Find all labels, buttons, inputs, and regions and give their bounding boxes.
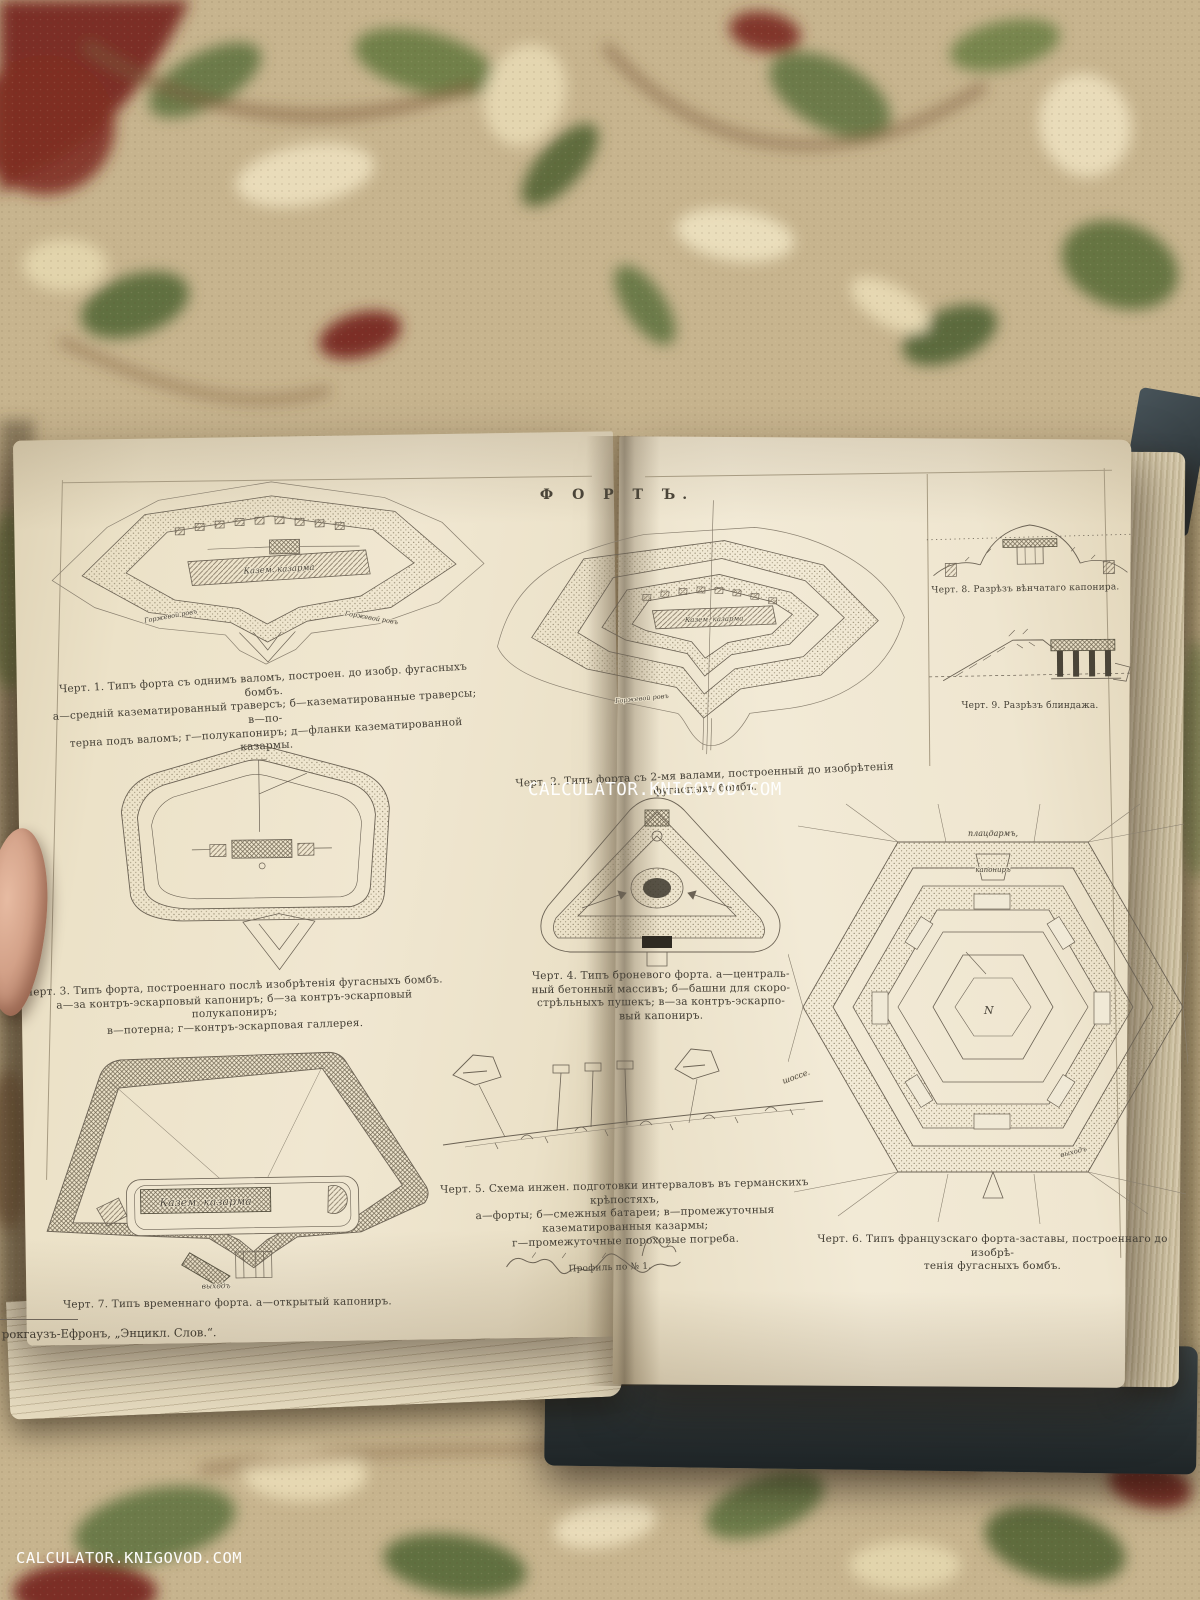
fig5-road-label: шоссе. [781, 1068, 811, 1086]
figure-1-drawing: Казем. казарма Горжевой ровъ Горжевой ро… [46, 459, 490, 674]
plate-title: Ф О Р Т Ъ. [532, 487, 702, 503]
footer-separator [0, 1319, 78, 1320]
figure-5-caption: Черт. 5. Схема инжен. подготовки интерва… [424, 1176, 825, 1253]
fig1-ditch-right-label: Горжевой ровъ [343, 609, 399, 626]
photo-of-open-book: Ф О Р Т Ъ. Казем. казарма Горжевой ровъ … [0, 0, 1200, 1600]
figure-5-drawing: шоссе. [435, 1035, 830, 1175]
publisher-footer: рокгаузъ-Ефронъ, „Энцикл. Слов.“. [2, 1325, 262, 1341]
fig2-kazarma-label: Казем. казарма [684, 615, 744, 625]
figure-9-drawing [925, 617, 1136, 704]
fig7-kazarma-label: Казем. казарма [158, 1195, 251, 1210]
figure-3-drawing [90, 730, 413, 982]
battery-symbols [553, 1061, 633, 1131]
fig6-kaponir-label: капониръ [975, 866, 1011, 874]
fig6-platzdarm-label: плацдармъ, [968, 829, 1018, 838]
fig6-north-label: N [983, 1004, 994, 1017]
watermark-bottom: CALCULATOR.KNIGOVOD.COM [16, 1549, 242, 1567]
blindage-posts [1057, 650, 1111, 676]
figure-4-caption: Черт. 4. Типъ броневого форта. а—централ… [496, 968, 826, 1025]
figure-4-drawing [522, 788, 792, 973]
figure-9-caption: Черт. 9. Разрѣзъ блиндажа. [930, 701, 1130, 712]
figure-6-drawing: плацдармъ, капониръ N выходъ [788, 802, 1188, 1230]
figure-8-drawing [924, 510, 1135, 586]
fig7-exit-label: выходъ [202, 1281, 231, 1291]
figure-7-drawing: Казем. казарма выходъ [36, 1035, 435, 1294]
figure-6-caption: Черт. 6. Типъ французскаго форта-заставы… [795, 1233, 1190, 1274]
road-marks [495, 1107, 793, 1149]
fig2-ditch-label: Горжевой ровъ [614, 692, 670, 705]
figure-2-drawing: Казем. казарма Горжевой ровъ [489, 487, 916, 770]
watermark-center: CALCULATOR.KNIGOVOD.COM [528, 780, 782, 800]
